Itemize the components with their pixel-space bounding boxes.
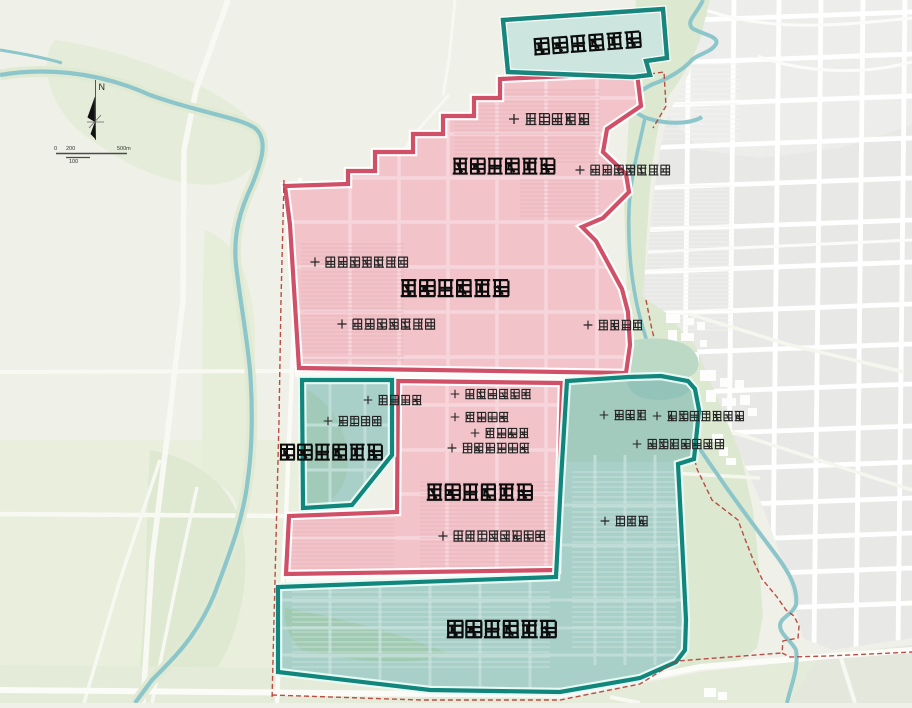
svg-text:0: 0 <box>54 146 57 152</box>
svg-text:100: 100 <box>69 159 78 165</box>
svg-text:500m: 500m <box>117 146 131 152</box>
svg-text:N: N <box>99 82 106 92</box>
svg-text:200: 200 <box>66 146 75 152</box>
